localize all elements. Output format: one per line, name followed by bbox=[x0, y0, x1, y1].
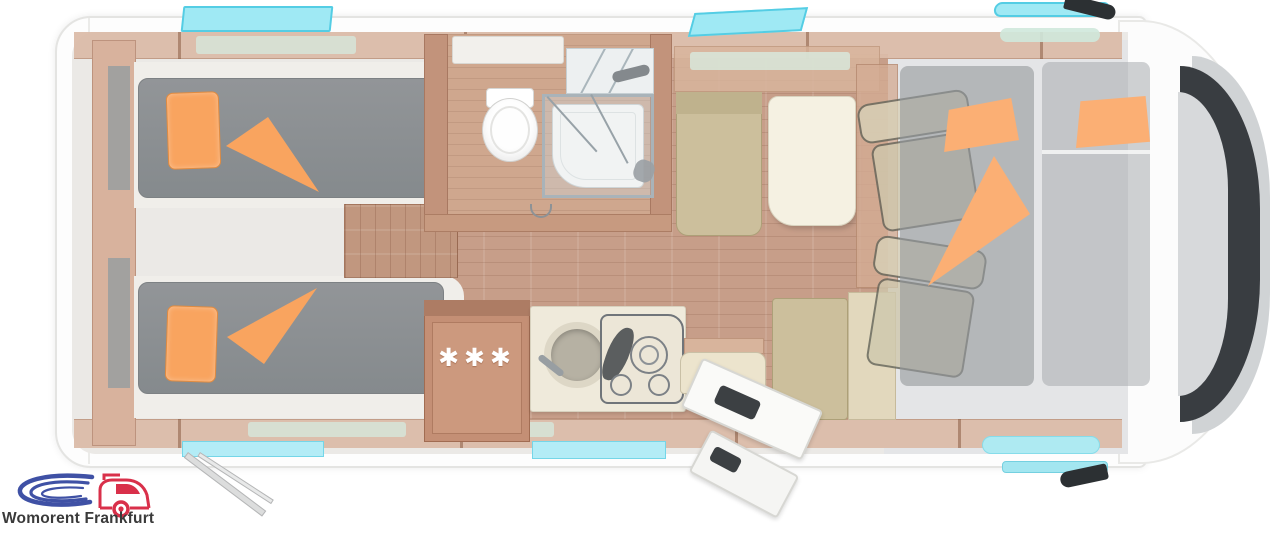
wall-divider bbox=[178, 32, 181, 59]
toilet-seat bbox=[490, 106, 530, 154]
panel-line bbox=[576, 48, 608, 94]
door-window bbox=[713, 384, 761, 420]
bathroom-wall-bottom bbox=[424, 214, 672, 232]
pillow-bottom-bed bbox=[165, 305, 219, 383]
door-window-outer bbox=[709, 446, 743, 474]
logo-text: Womorent Frankfurt bbox=[2, 510, 154, 528]
top-wall-window-strip bbox=[196, 36, 356, 54]
cab-window-inner-top bbox=[1000, 28, 1100, 42]
fridge-top bbox=[424, 300, 530, 316]
side-window-bottom-mid bbox=[532, 441, 666, 459]
pillow-cab-bed-right bbox=[1076, 96, 1150, 148]
cab-door-window-bottom bbox=[982, 436, 1100, 454]
wall-divider bbox=[958, 419, 961, 448]
wall-divider bbox=[178, 419, 181, 448]
burner-large-inner bbox=[639, 345, 659, 365]
dinette-skylight bbox=[690, 52, 850, 70]
rear-wardrobe-panel bbox=[108, 66, 130, 190]
bathroom-wall-left bbox=[424, 34, 448, 232]
bottom-wall-window-strip bbox=[248, 422, 406, 437]
bathroom-counter bbox=[452, 36, 564, 64]
dinette-bench-backrest bbox=[676, 92, 762, 114]
burner-small bbox=[610, 374, 632, 396]
pillow-top-bed bbox=[166, 91, 222, 170]
mattress-divider bbox=[1042, 150, 1150, 154]
rear-wardrobe-panel bbox=[108, 258, 130, 388]
company-logo: Womorent Frankfurt bbox=[0, 468, 220, 537]
dinette-table bbox=[768, 96, 856, 226]
roof-window-rear bbox=[181, 6, 334, 32]
motorhome-floorplan: ✱✱✱ bbox=[0, 0, 1280, 537]
burner-small bbox=[648, 374, 670, 396]
freezer-star-rating: ✱✱✱ bbox=[424, 338, 530, 378]
